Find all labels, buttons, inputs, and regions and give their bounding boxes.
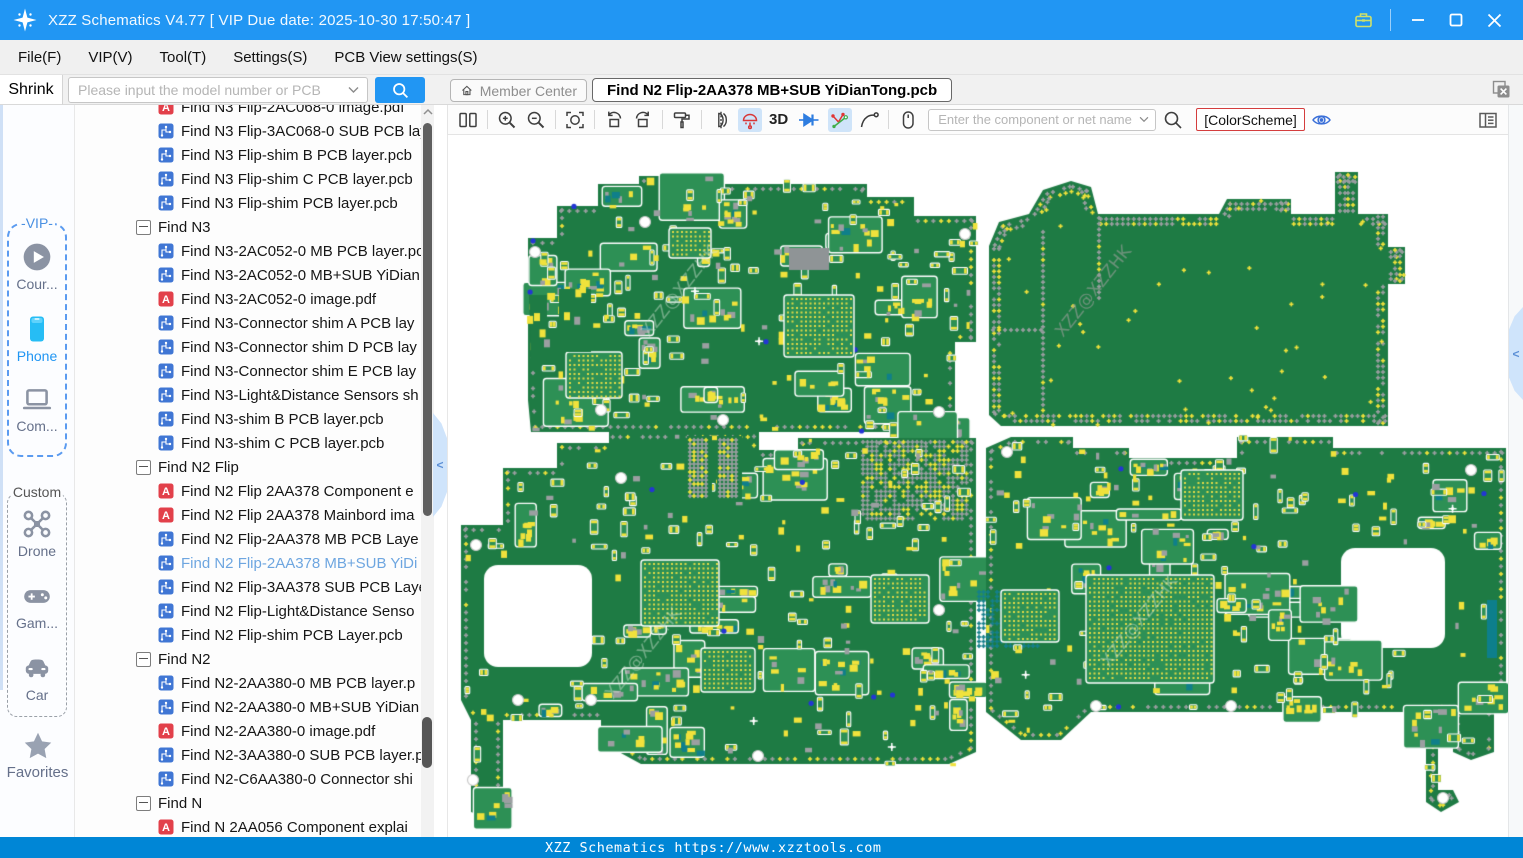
title-bar: XZZ Schematics V4.77 [ VIP Due date: 202… bbox=[0, 0, 1523, 40]
toolbar-separator bbox=[888, 110, 889, 129]
tree-item-label: Find N2 Flip-2AA378 MB+SUB YiDi bbox=[181, 555, 417, 572]
license-briefcase-icon[interactable] bbox=[1348, 7, 1378, 33]
tree-item-label: Find N2 Flip-3AA378 SUB PCB Laye bbox=[181, 579, 421, 596]
tree-item-label: Find N2-2AA380-0 MB PCB layer.p bbox=[181, 675, 415, 692]
split-view-icon[interactable] bbox=[456, 108, 480, 132]
file-tree-list: AFind N3 Flip-2AC068-0 image.pdfFind N3 … bbox=[75, 105, 421, 837]
eye-visibility-icon[interactable] bbox=[1310, 108, 1334, 132]
pcb-file-icon bbox=[158, 699, 174, 715]
svg-text:A: A bbox=[162, 726, 170, 738]
tree-item-label: Find N2-3AA380-0 SUB PCB layer.p bbox=[181, 747, 421, 764]
tree-item-label: Find N2-C6AA380-0 Connector shi bbox=[181, 771, 413, 788]
tree-item-row[interactable]: AFind N2 Flip 2AA378 Mainbord ima bbox=[75, 503, 421, 527]
pcb-toolbar: 3D Enter the component or net name [Colo… bbox=[447, 105, 1508, 135]
toolbar-separator bbox=[701, 110, 702, 129]
tree-item-label: Find N3 Flip-3AC068-0 SUB PCB lay bbox=[181, 123, 421, 140]
tree-item-label: Find N bbox=[158, 795, 202, 812]
rotate-right-icon[interactable] bbox=[631, 108, 655, 132]
chevron-down-icon[interactable] bbox=[348, 86, 359, 94]
drone-icon bbox=[21, 508, 53, 540]
pcb-file-icon bbox=[158, 747, 174, 763]
pdf-file-icon: A bbox=[158, 819, 174, 835]
collapse-toggle-icon[interactable] bbox=[136, 460, 151, 475]
right-panel-strip bbox=[1508, 105, 1523, 837]
sidebar-item-game[interactable]: Gam... bbox=[8, 580, 66, 631]
tree-item-label: Find N3 bbox=[158, 219, 211, 236]
tree-item-label: Find N3 Flip-shim B PCB layer.pcb bbox=[181, 147, 412, 164]
tree-item-row[interactable]: Find N2-3AA380-0 SUB PCB layer.p bbox=[75, 743, 421, 767]
tree-item-row[interactable]: Find N3-shim C PCB layer.pcb bbox=[75, 431, 421, 455]
tree-item-row[interactable]: Find N2 Flip-shim PCB Layer.pcb bbox=[75, 623, 421, 647]
pcb-file-icon bbox=[158, 147, 174, 163]
tree-item-label: Find N3-Connector shim A PCB lay bbox=[181, 315, 414, 332]
sidebar-item-label: Car bbox=[26, 687, 49, 703]
pcb-file-icon bbox=[158, 363, 174, 379]
tree-item-label: Find N3-Connector shim D PCB lay bbox=[181, 339, 417, 356]
pcb-file-icon bbox=[158, 579, 174, 595]
tree-item-row[interactable]: Find N2 Flip-2AA378 MB+SUB YiDi bbox=[75, 551, 421, 575]
tree-group-row[interactable]: Find N2 Flip bbox=[75, 455, 421, 479]
pcb-file-icon bbox=[158, 195, 174, 211]
sidebar-item-car[interactable]: Car bbox=[8, 652, 66, 703]
toolbar-separator bbox=[555, 110, 556, 129]
chevron-down-icon[interactable] bbox=[1139, 116, 1149, 123]
three-d-view-button[interactable]: 3D bbox=[767, 108, 790, 132]
pcb-canvas[interactable] bbox=[448, 135, 1509, 837]
panel-scrollbar-thumb[interactable] bbox=[422, 717, 432, 768]
member-center-button[interactable]: Member Center bbox=[450, 79, 587, 102]
tree-item-row[interactable]: Find N3-2AC052-0 MB+SUB YiDian bbox=[75, 263, 421, 287]
tree-item-label: Find N2 Flip-shim PCB Layer.pcb bbox=[181, 627, 403, 644]
tree-item-row[interactable]: Find N2-2AA380-0 MB PCB layer.p bbox=[75, 671, 421, 695]
svg-text:A: A bbox=[162, 486, 170, 498]
tree-item-row[interactable]: AFind N2 Flip 2AA378 Component e bbox=[75, 479, 421, 503]
svg-text:A: A bbox=[162, 105, 170, 114]
tree-item-row[interactable]: Find N2-2AA380-0 MB+SUB YiDian bbox=[75, 695, 421, 719]
pcb-file-icon bbox=[158, 675, 174, 691]
tree-group-row[interactable]: Find N bbox=[75, 791, 421, 815]
tree-item-label: Find N3-shim C PCB layer.pcb bbox=[181, 435, 384, 452]
car-icon bbox=[21, 652, 53, 684]
tree-item-row[interactable]: Find N3 Flip-shim B PCB layer.pcb bbox=[75, 143, 421, 167]
sidebar-item-drone[interactable]: Drone bbox=[8, 508, 66, 559]
tree-item-row[interactable]: Find N2 Flip-3AA378 SUB PCB Laye bbox=[75, 575, 421, 599]
fit-view-icon[interactable] bbox=[563, 108, 587, 132]
tree-item-label: Find N2 bbox=[158, 651, 211, 668]
paint-roller-icon[interactable] bbox=[670, 108, 694, 132]
tree-group-row[interactable]: Find N2 bbox=[75, 647, 421, 671]
tree-group-row[interactable]: Find N3 bbox=[75, 215, 421, 239]
mouse-settings-icon[interactable] bbox=[896, 108, 920, 132]
tree-item-label: Find N3-Connector shim E PCB lay bbox=[181, 363, 416, 380]
laptop-icon bbox=[21, 385, 53, 415]
toolbar-separator bbox=[594, 110, 595, 129]
net-search-placeholder: Enter the component or net name bbox=[938, 112, 1136, 127]
titlebar-separator bbox=[1390, 9, 1391, 31]
net-highlight-lamp-icon[interactable] bbox=[738, 108, 762, 132]
tree-item-row[interactable]: Find N3-Connector shim E PCB lay bbox=[75, 359, 421, 383]
document-tab-label: Find N2 Flip-2AA378 MB+SUB YiDianTong.pc… bbox=[607, 82, 937, 99]
measure-route-icon[interactable] bbox=[828, 108, 852, 132]
sidebar-item-label: Phone bbox=[17, 348, 57, 364]
member-center-label: Member Center bbox=[480, 83, 577, 99]
vip-group-label: -VIP- bbox=[19, 215, 55, 231]
tree-item-row[interactable]: Find N3 Flip-shim C PCB layer.pcb bbox=[75, 167, 421, 191]
tree-item-row[interactable]: AFind N3 Flip-2AC068-0 image.pdf bbox=[75, 105, 421, 119]
pcb-file-icon bbox=[158, 435, 174, 451]
shrink-button[interactable]: Shrink bbox=[0, 75, 63, 105]
sidebar-item-phone[interactable]: Phone bbox=[9, 313, 65, 364]
side-panel-toggle-icon[interactable] bbox=[1476, 108, 1500, 132]
tree-item-row[interactable]: Find N3-shim B PCB layer.pcb bbox=[75, 407, 421, 431]
sidebar-item-computer[interactable]: Com... bbox=[9, 385, 65, 434]
pcb-file-icon bbox=[158, 243, 174, 259]
sidebar-item-label: Cour... bbox=[16, 276, 57, 292]
tree-item-row[interactable]: AFind N 2AA056 Component explai bbox=[75, 815, 421, 837]
tree-item-row[interactable]: AFind N2-2AA380-0 image.pdf bbox=[75, 719, 421, 743]
menu-bar: File(F) VIP(V) Tool(T) Settings(S) PCB V… bbox=[0, 40, 1523, 75]
tree-item-row[interactable]: Find N2 Flip-Light&Distance Senso bbox=[75, 599, 421, 623]
svg-text:A: A bbox=[162, 510, 170, 522]
menu-vip[interactable]: VIP(V) bbox=[88, 49, 132, 66]
vip-group: -VIP- Cour... Phone Com... bbox=[7, 223, 67, 457]
sidebar-item-label: Drone bbox=[18, 543, 56, 559]
pdf-file-icon: A bbox=[158, 507, 174, 523]
rotate-left-icon[interactable] bbox=[602, 108, 626, 132]
sidebar-item-label: Com... bbox=[16, 418, 57, 434]
net-search-icon[interactable] bbox=[1161, 108, 1185, 132]
svg-text:A: A bbox=[162, 294, 170, 306]
menu-file[interactable]: File(F) bbox=[18, 49, 61, 66]
gamepad-icon bbox=[21, 580, 53, 612]
tree-item-label: Find N2 Flip 2AA378 Component e bbox=[181, 483, 414, 500]
home-icon bbox=[460, 82, 474, 99]
pcb-file-icon bbox=[158, 267, 174, 283]
file-tree-panel[interactable]: AFind N3 Flip-2AC068-0 image.pdfFind N3 … bbox=[75, 105, 421, 837]
phone-icon bbox=[22, 313, 52, 345]
app-logo-icon bbox=[12, 7, 38, 33]
tree-item-label: Find N3-2AC052-0 MB PCB layer.pc bbox=[181, 243, 421, 260]
tree-item-row[interactable]: Find N3-2AC052-0 MB PCB layer.pc bbox=[75, 239, 421, 263]
tree-item-label: Find N3-2AC052-0 MB+SUB YiDian bbox=[181, 267, 420, 284]
menu-tool[interactable]: Tool(T) bbox=[160, 49, 207, 66]
collapse-toggle-icon[interactable] bbox=[136, 220, 151, 235]
tree-scrollbar-thumb[interactable] bbox=[423, 123, 432, 516]
tree-item-label: Find N3 Flip-shim C PCB layer.pcb bbox=[181, 171, 413, 188]
scrollbar-up-icon[interactable] bbox=[423, 108, 433, 116]
tree-item-row[interactable]: Find N2 Flip-2AA378 MB PCB Laye bbox=[75, 527, 421, 551]
tree-item-label: Find N2-2AA380-0 MB+SUB YiDian bbox=[181, 699, 419, 716]
pcb-file-icon bbox=[158, 123, 174, 139]
sidebar-item-favorites[interactable]: Favorites bbox=[0, 730, 75, 781]
window-title: XZZ Schematics V4.77 [ VIP Due date: 202… bbox=[48, 12, 470, 29]
color-scheme-button[interactable]: [ColorScheme] bbox=[1196, 108, 1305, 131]
pcb-file-icon bbox=[158, 171, 174, 187]
pdf-file-icon: A bbox=[158, 105, 174, 115]
tree-item-row[interactable]: Find N2-C6AA380-0 Connector shi bbox=[75, 767, 421, 791]
minimize-button[interactable] bbox=[1403, 7, 1433, 33]
pcb-file-icon bbox=[158, 411, 174, 427]
toolbar-separator bbox=[487, 110, 488, 129]
tree-item-row[interactable]: Find N3 Flip-shim PCB layer.pcb bbox=[75, 191, 421, 215]
tree-item-row[interactable]: Find N3-Connector shim A PCB lay bbox=[75, 311, 421, 335]
pcb-file-icon bbox=[158, 315, 174, 331]
toolbar-separator bbox=[662, 110, 663, 129]
collapse-toggle-icon[interactable] bbox=[136, 652, 151, 667]
tree-item-label: Find N3 Flip-shim PCB layer.pcb bbox=[181, 195, 398, 212]
arc-measure-icon[interactable] bbox=[857, 108, 881, 132]
close-button[interactable] bbox=[1479, 7, 1509, 33]
pdf-file-icon: A bbox=[158, 723, 174, 739]
tree-item-label: Find N2 Flip-2AA378 MB PCB Laye bbox=[181, 531, 419, 548]
net-search-input[interactable]: Enter the component or net name bbox=[928, 109, 1156, 131]
sidebar-item-label: Favorites bbox=[7, 764, 69, 781]
tree-item-label: Find N2-2AA380-0 image.pdf bbox=[181, 723, 375, 740]
course-play-icon bbox=[21, 241, 53, 273]
close-document-icon[interactable] bbox=[1491, 79, 1512, 100]
pdf-file-icon: A bbox=[158, 291, 174, 307]
pcb-file-icon bbox=[158, 627, 174, 643]
tree-item-label: Find N2 Flip bbox=[158, 459, 239, 476]
pcb-file-icon bbox=[158, 555, 174, 571]
tree-item-label: Find N 2AA056 Component explai bbox=[181, 819, 408, 836]
sidebar-item-course[interactable]: Cour... bbox=[9, 241, 65, 292]
star-icon bbox=[21, 730, 55, 762]
category-sidebar: -VIP- Cour... Phone Com... Custom Drone bbox=[0, 105, 75, 837]
svg-text:A: A bbox=[162, 822, 170, 834]
diode-mode-icon[interactable] bbox=[795, 108, 823, 132]
status-text: XZZ Schematics https://www.xzztools.com bbox=[545, 840, 881, 856]
status-bar: XZZ Schematics https://www.xzztools.com bbox=[0, 837, 1523, 858]
sidebar-edge-highlight bbox=[0, 105, 3, 690]
tree-item-label: Find N3-Light&Distance Sensors sh bbox=[181, 387, 419, 404]
pcb-file-icon bbox=[158, 339, 174, 355]
tree-item-label: Find N3-shim B PCB layer.pcb bbox=[181, 411, 384, 428]
tree-item-row[interactable]: AFind N3-2AC052-0 image.pdf bbox=[75, 287, 421, 311]
pdf-file-icon: A bbox=[158, 483, 174, 499]
search-button[interactable] bbox=[375, 77, 425, 103]
custom-group: Custom Drone Gam... Car bbox=[7, 493, 67, 717]
pcb-file-icon bbox=[158, 531, 174, 547]
collapse-tree-tab[interactable]: < bbox=[433, 413, 447, 517]
tree-item-label: Find N3-2AC052-0 image.pdf bbox=[181, 291, 376, 308]
document-tab[interactable]: Find N2 Flip-2AA378 MB+SUB YiDianTong.pc… bbox=[592, 78, 952, 102]
tree-item-label: Find N3 Flip-2AC068-0 image.pdf bbox=[181, 105, 404, 116]
tree-item-row[interactable]: Find N3 Flip-3AC068-0 SUB PCB lay bbox=[75, 119, 421, 143]
app-window: XZZ Schematics V4.77 [ VIP Due date: 202… bbox=[0, 0, 1523, 858]
mirror-flip-icon[interactable] bbox=[709, 108, 733, 132]
zoom-in-icon[interactable] bbox=[495, 108, 519, 132]
zoom-out-icon[interactable] bbox=[524, 108, 548, 132]
sidebar-item-label: Gam... bbox=[16, 615, 58, 631]
tree-item-row[interactable]: Find N3-Connector shim D PCB lay bbox=[75, 335, 421, 359]
menu-settings[interactable]: Settings(S) bbox=[233, 49, 307, 66]
pcb-file-icon bbox=[158, 771, 174, 787]
pcb-file-icon bbox=[158, 603, 174, 619]
pcb-file-icon bbox=[158, 387, 174, 403]
tree-item-label: Find N2 Flip 2AA378 Mainbord ima bbox=[181, 507, 414, 524]
model-search-placeholder: Please input the model number or PCB bbox=[78, 82, 344, 98]
menu-pcb-view-settings[interactable]: PCB View settings(S) bbox=[334, 49, 477, 66]
tree-item-row[interactable]: Find N3-Light&Distance Sensors sh bbox=[75, 383, 421, 407]
search-icon bbox=[391, 81, 410, 100]
tree-item-label: Find N2 Flip-Light&Distance Senso bbox=[181, 603, 414, 620]
custom-group-label: Custom bbox=[11, 484, 63, 500]
model-search-input[interactable]: Please input the model number or PCB bbox=[68, 77, 368, 103]
pcb-viewport[interactable] bbox=[447, 135, 1508, 837]
maximize-button[interactable] bbox=[1441, 7, 1471, 33]
color-scheme-label: [ColorScheme] bbox=[1204, 112, 1297, 128]
collapse-toggle-icon[interactable] bbox=[136, 796, 151, 811]
